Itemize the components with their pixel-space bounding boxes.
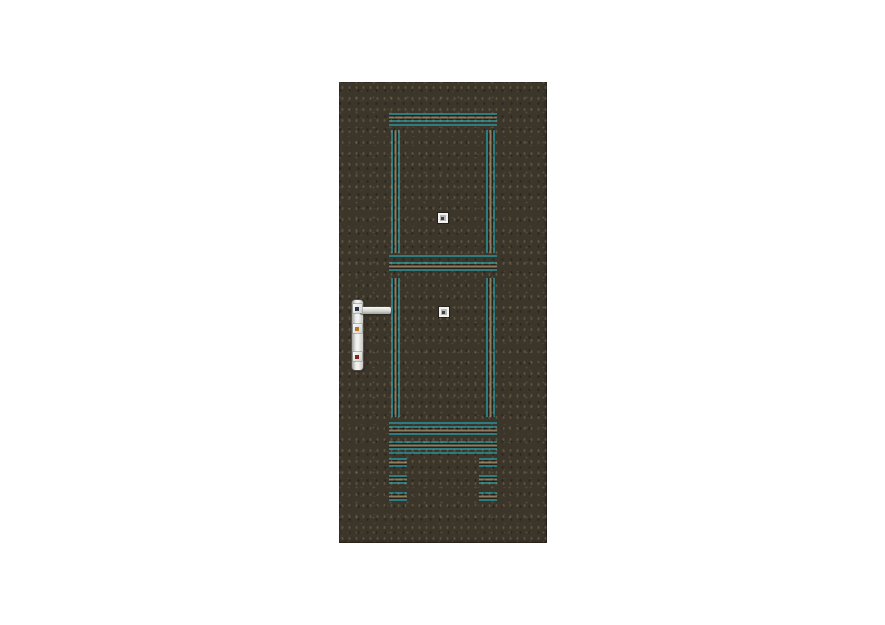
keyhole-upper [353,324,362,333]
groove-ladder-right-2 [479,475,497,484]
door-stud-lower [439,307,449,317]
handle-rose-dot [355,307,359,311]
door-image [339,82,547,543]
door-stud-upper [438,213,448,223]
keyhole-lower-dot [355,355,359,359]
keyhole-upper-dot [355,327,359,331]
handle-backplate [352,300,363,370]
groove-top-triple [389,113,497,122]
keyhole-lower [353,352,362,361]
handle-lever [360,307,391,314]
groove-middle-triple [389,262,497,271]
groove-ladder-left-3 [389,492,407,501]
groove-panel1-right [486,130,495,253]
background [0,0,885,625]
groove-ladder-left-2 [389,475,407,484]
groove-bottomA-single [389,422,497,424]
groove-panel1-left [391,130,400,253]
handle-rose [353,304,362,313]
groove-top-single [389,124,497,126]
groove-bottomA-triple [389,426,497,435]
groove-bottomB-single [389,452,497,454]
groove-panel2-left [391,278,400,417]
groove-bottomB-triple [389,441,497,450]
groove-ladder-right-1 [479,458,497,467]
groove-ladder-right-3 [479,492,497,501]
groove-middle-single [389,255,497,257]
groove-panel2-right [486,278,495,417]
groove-ladder-left-1 [389,458,407,467]
